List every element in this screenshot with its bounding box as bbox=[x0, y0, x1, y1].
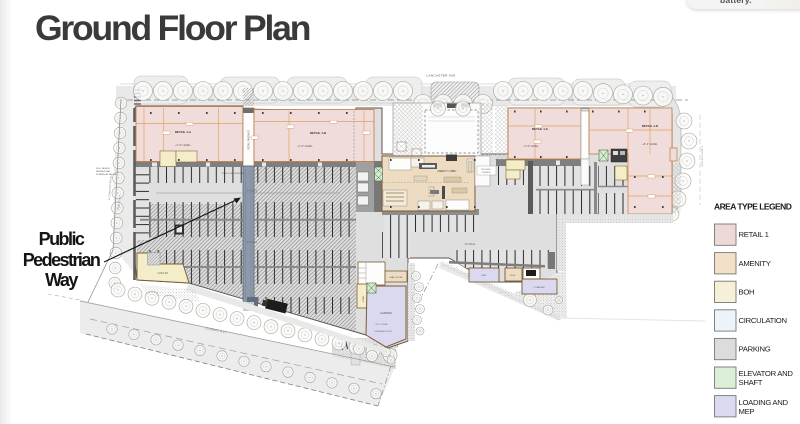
svg-text:STAIR: STAIR bbox=[362, 295, 365, 302]
svg-text:LOADING AND: LOADING AND bbox=[739, 398, 789, 407]
svg-text:LANCASTER AVE: LANCASTER AVE bbox=[426, 74, 455, 78]
svg-text:OVERHEAD DOOR: OVERHEAD DOOR bbox=[374, 330, 392, 333]
svg-text:N ADDISON AVE: N ADDISON AVE bbox=[701, 146, 704, 167]
svg-text:RETAIL 1-D: RETAIL 1-D bbox=[642, 124, 659, 128]
svg-text:RETAIL PASSAGE: RETAIL PASSAGE bbox=[248, 130, 251, 150]
svg-text:CAR LIFT: CAR LIFT bbox=[158, 272, 169, 275]
svg-text:OVERRIDE: OVERRIDE bbox=[481, 172, 491, 174]
svg-text:SHAFT: SHAFT bbox=[739, 378, 763, 387]
svg-text:PUBLIC ACCESSWAY: PUBLIC ACCESSWAY bbox=[222, 172, 245, 175]
svg-text:AMENITY: AMENITY bbox=[739, 259, 771, 268]
svg-text:AMENITY LOBBY: AMENITY LOBBY bbox=[437, 170, 457, 173]
svg-text:ELEVATOR AND: ELEVATOR AND bbox=[739, 369, 794, 378]
svg-text:FULL HEIGHT: FULL HEIGHT bbox=[96, 168, 111, 170]
svg-text:+7'-6" LEVEL: +7'-6" LEVEL bbox=[297, 144, 313, 148]
svg-text:RESIDENTIAL: RESIDENTIAL bbox=[96, 170, 111, 173]
svg-text:24' AISLE: 24' AISLE bbox=[247, 190, 258, 193]
svg-text:2ND LEVEL: 2ND LEVEL bbox=[481, 169, 491, 171]
svg-text:+11'-0" CLEAR: +11'-0" CLEAR bbox=[374, 323, 388, 326]
svg-text:COMM RM: COMM RM bbox=[534, 287, 545, 289]
svg-text:ELEC: ELEC bbox=[510, 275, 516, 277]
svg-text:SCREEN AT FLOOR: SCREEN AT FLOOR bbox=[96, 173, 117, 176]
svg-text:MDF: MDF bbox=[482, 275, 487, 277]
svg-text:24' AISLE: 24' AISLE bbox=[247, 241, 258, 244]
svg-text:MEP: MEP bbox=[739, 407, 755, 416]
svg-text:AREA TYPE LEGEND: AREA TYPE LEGEND bbox=[714, 202, 792, 212]
svg-text:BOH: BOH bbox=[739, 287, 755, 296]
svg-text:LOADING: LOADING bbox=[380, 311, 392, 315]
svg-text:RETAIL 1-B: RETAIL 1-B bbox=[310, 131, 327, 135]
svg-text:24' AISLE: 24' AISLE bbox=[465, 243, 476, 246]
svg-text:RETAIL 1: RETAIL 1 bbox=[739, 230, 769, 239]
svg-text:CIRCULATION: CIRCULATION bbox=[739, 316, 787, 325]
svg-text:+7'-6" LEVEL: +7'-6" LEVEL bbox=[523, 144, 539, 148]
svg-text:MAIL ROOM: MAIL ROOM bbox=[390, 276, 403, 279]
svg-text:PARKING: PARKING bbox=[739, 345, 771, 354]
svg-text:+8'-4" LEVEL: +8'-4" LEVEL bbox=[642, 142, 658, 146]
svg-text:S CONESTOGA ALY: S CONESTOGA ALY bbox=[108, 173, 113, 200]
svg-text:RETAIL 1-A: RETAIL 1-A bbox=[175, 130, 192, 134]
svg-text:+7'-0" LEVEL: +7'-0" LEVEL bbox=[175, 143, 191, 147]
